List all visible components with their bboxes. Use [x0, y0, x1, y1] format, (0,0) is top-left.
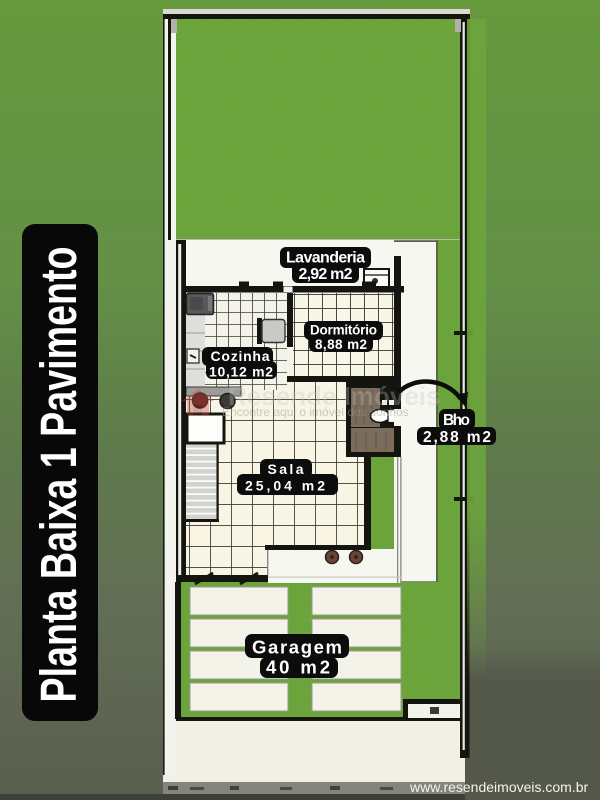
svg-text:Bho: Bho — [443, 412, 470, 429]
svg-text:8,88 m2: 8,88 m2 — [315, 337, 367, 352]
svg-text:Lavanderia: Lavanderia — [286, 249, 365, 266]
svg-text:2,92 m2: 2,92 m2 — [299, 266, 353, 283]
svg-text:Planta Baixa 1 Pavimento: Planta Baixa 1 Pavimento — [30, 247, 87, 703]
svg-text:10,12 m2: 10,12 m2 — [209, 363, 273, 379]
svg-text:Dormitório: Dormitório — [310, 322, 377, 337]
svg-text:Garagem: Garagem — [252, 637, 342, 658]
svg-text:Cozinha: Cozinha — [211, 348, 270, 364]
svg-text:www.resendeimoveis.com.br: www.resendeimoveis.com.br — [409, 779, 589, 795]
svg-text:Sala: Sala — [268, 461, 304, 477]
svg-text:25,04 m2: 25,04 m2 — [245, 478, 325, 494]
svg-text:Encontre aqui o imóvel dos son: Encontre aqui o imóvel dos sonhos — [222, 405, 409, 419]
